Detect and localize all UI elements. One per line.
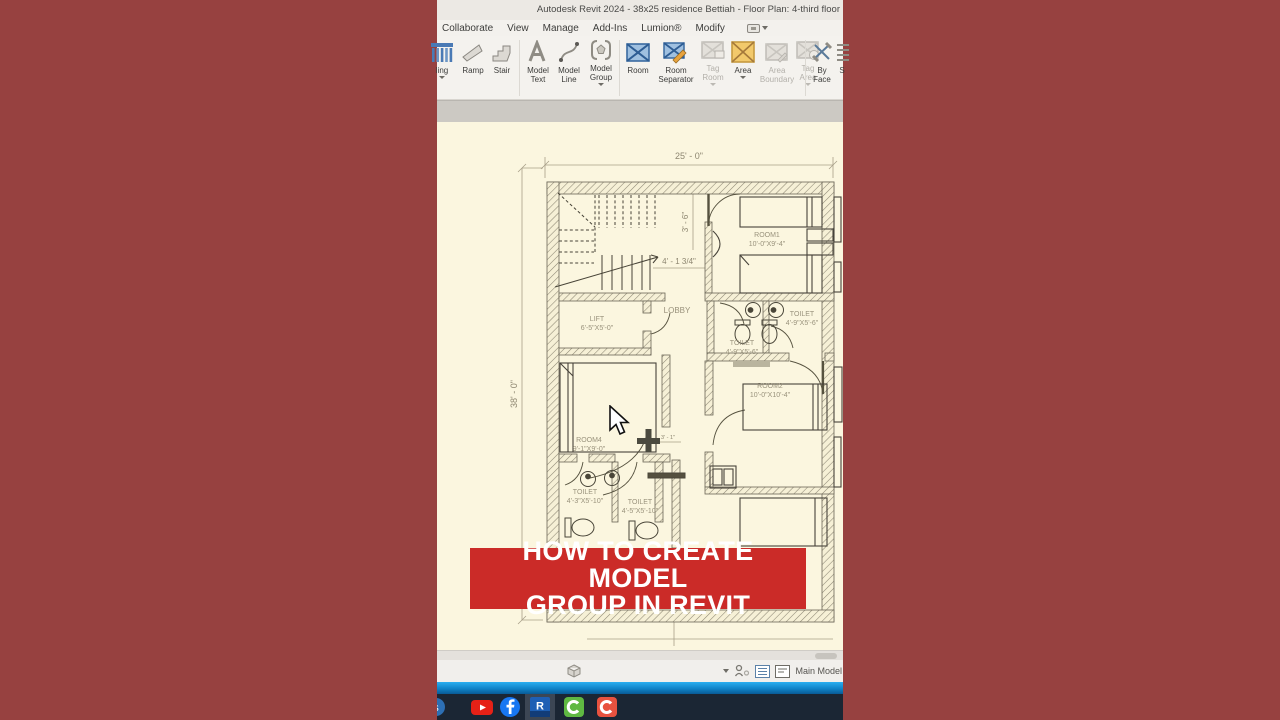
tab-modify[interactable]: Modify (695, 23, 724, 34)
room-separator-icon (663, 38, 689, 64)
shaft-icon (835, 38, 849, 64)
area-button[interactable]: Area (729, 38, 757, 86)
ribbon-separator (805, 40, 806, 96)
dropdown-caret-icon (598, 83, 604, 86)
svg-text:4'-9"X5'-6": 4'-9"X5'-6" (786, 320, 819, 327)
tab-collaborate[interactable]: Collaborate (442, 23, 493, 34)
tag-room-button: TagRoom (699, 38, 727, 86)
caption-line-2: GROUP IN REVIT (526, 592, 750, 619)
stair-icon (490, 38, 514, 64)
worksharing-icon[interactable] (734, 664, 750, 678)
ribbon-state-toggle[interactable] (747, 24, 768, 33)
model-text-icon (526, 38, 550, 64)
ribbon-panel-icon (747, 24, 760, 33)
model-group-button[interactable]: ModelGroup (585, 38, 617, 86)
ramp-button[interactable]: Ramp (459, 38, 487, 86)
caption-line-1: HOW TO CREATE MODEL (470, 538, 806, 592)
room4-label: ROOM4 (576, 437, 602, 444)
area-boundary-button: AreaBoundary (759, 38, 795, 86)
dropdown-caret-icon (710, 83, 716, 86)
model-group-icon (589, 38, 613, 62)
by-face-button[interactable]: ByFace (809, 38, 835, 86)
svg-text:25' - 0": 25' - 0" (675, 151, 703, 161)
svg-text:10'-0"X9'-4": 10'-0"X9'-4" (749, 241, 786, 248)
toilet3-label: TOILET (573, 489, 598, 496)
tab-manage[interactable]: Manage (543, 23, 579, 34)
taskbar-partial-icon[interactable]: s (437, 696, 447, 718)
toilet2-label: TOILET (790, 311, 815, 318)
shaft-button[interactable]: S (835, 38, 849, 86)
room1-label: ROOM1 (754, 232, 780, 239)
youtube-icon[interactable] (470, 696, 492, 718)
caption-banner: HOW TO CREATE MODEL GROUP IN REVIT (470, 548, 806, 609)
reveal-hidden-icon[interactable] (775, 665, 790, 678)
svg-text:R: R (536, 701, 544, 713)
model-text-button[interactable]: ModelText (523, 38, 553, 86)
facebook-icon[interactable] (499, 696, 521, 718)
railing-button[interactable]: ling (429, 38, 455, 86)
toilet4-label: TOILET (628, 499, 653, 506)
svg-text:4'-5"X5'-10": 4'-5"X5'-10" (622, 508, 659, 515)
ribbon: ling Ramp Stair ModelText (437, 36, 843, 100)
revit-icon[interactable]: R (529, 696, 551, 718)
scrollbar-horizontal[interactable] (437, 650, 843, 660)
svg-text:3' - 1": 3' - 1" (661, 435, 675, 441)
cube-icon (567, 664, 581, 678)
video-frame: Autodesk Revit 2024 - 38x25 residence Be… (0, 0, 1280, 720)
dropdown-caret-icon (439, 76, 445, 79)
room-labels: ROOM1 10'-0"X9'-4" LOBBY LIFT 6'-5"X5'-0… (567, 232, 819, 515)
mouse-cursor-icon (608, 405, 632, 435)
tab-view[interactable]: View (507, 23, 529, 34)
ribbon-separator (619, 40, 620, 96)
tab-lumion[interactable]: Lumion® (641, 23, 681, 34)
camtasia-recorder-icon[interactable] (596, 696, 618, 718)
svg-text:3' - 6": 3' - 6" (681, 212, 690, 233)
camtasia-icon[interactable] (563, 696, 585, 718)
room-button[interactable]: Room (623, 38, 653, 86)
ramp-icon (461, 38, 485, 64)
filter-list-icon[interactable] (755, 665, 770, 678)
railing-icon (430, 38, 454, 64)
area-boundary-icon (764, 38, 790, 64)
svg-text:4'-3"X5'-10": 4'-3"X5'-10" (567, 498, 604, 505)
windows-taskbar: s R (437, 694, 843, 720)
room-separator-button[interactable]: RoomSeparator (655, 38, 697, 86)
area-icon (730, 38, 756, 64)
chevron-down-icon (762, 26, 768, 30)
svg-text:4' - 1 3/4": 4' - 1 3/4" (662, 257, 696, 266)
title-bar: Autodesk Revit 2024 - 38x25 residence Be… (437, 0, 843, 20)
window-title: Autodesk Revit 2024 - 38x25 residence Be… (537, 4, 840, 15)
options-bar (437, 100, 843, 122)
chevron-down-icon[interactable] (723, 669, 729, 673)
ribbon-separator (519, 40, 520, 96)
tab-addins[interactable]: Add-Ins (593, 23, 627, 34)
lobby-label: LOBBY (664, 306, 691, 315)
svg-text:6'-5"X5'-0": 6'-5"X5'-0" (581, 325, 614, 332)
status-bar: Main Model (437, 660, 843, 682)
tag-room-icon (700, 38, 726, 62)
svg-text:10'-0"X10'-4": 10'-0"X10'-4" (750, 392, 791, 399)
dropdown-caret-icon (740, 76, 746, 79)
by-face-icon (810, 38, 834, 64)
main-model-label[interactable]: Main Model (795, 666, 842, 676)
taskbar-top-glow (437, 682, 843, 694)
model-line-button[interactable]: ModelLine (555, 38, 583, 86)
stair-button[interactable]: Stair (489, 38, 515, 86)
toilet1-label: TOILET (730, 340, 755, 347)
svg-text:9'-1"X9'-0": 9'-1"X9'-0" (573, 446, 606, 453)
svg-text:4'-9"X5'-6": 4'-9"X5'-6" (726, 349, 759, 356)
svg-text:38' - 0": 38' - 0" (509, 380, 519, 408)
ribbon-tab-bar: Collaborate View Manage Add-Ins Lumion® … (437, 20, 843, 36)
scrollbar-thumb[interactable] (815, 653, 837, 659)
lift-label: LIFT (590, 316, 605, 323)
plus-crosshair-icon (637, 429, 661, 453)
stairs (555, 193, 658, 290)
model-line-icon (557, 38, 581, 64)
room-icon (625, 38, 651, 64)
room2-label: ROOM2 (757, 383, 783, 390)
